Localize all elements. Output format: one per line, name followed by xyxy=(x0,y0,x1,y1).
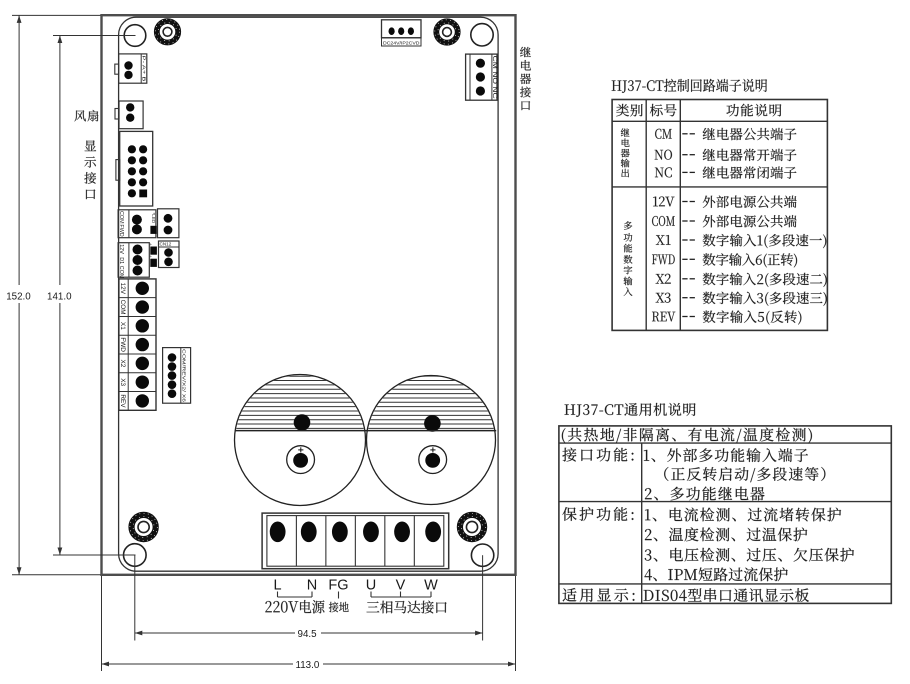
svg-text:P- A+ B: P- A+ B xyxy=(142,56,147,82)
svg-text:FWD: FWD xyxy=(118,224,124,236)
svg-text:W: W xyxy=(424,578,438,594)
svg-text:94.5: 94.5 xyxy=(298,629,318,640)
svg-text:12V: 12V xyxy=(119,283,126,295)
svg-text:FG: FG xyxy=(328,578,348,594)
svg-text:REV: REV xyxy=(119,394,126,408)
svg-text:CM NO NC: CM NO NC xyxy=(491,56,498,100)
svg-text:DC24V/IP2CVD: DC24V/IP2CVD xyxy=(383,41,420,46)
svg-text:113.0: 113.0 xyxy=(296,660,320,671)
svg-text:U: U xyxy=(366,578,376,594)
svg-text:V: V xyxy=(396,578,406,594)
svg-text:L: L xyxy=(273,578,281,594)
svg-text:X1: X1 xyxy=(119,322,126,330)
svg-text:COM/REV/X2/ X6: COM/REV/X2/ X6 xyxy=(182,349,187,403)
svg-text:12V: 12V xyxy=(118,244,124,254)
svg-text:X3: X3 xyxy=(119,378,126,386)
svg-text:N: N xyxy=(307,578,317,594)
svg-text:+: + xyxy=(150,254,153,259)
svg-text:D1: D1 xyxy=(118,257,124,264)
svg-text:152.0: 152.0 xyxy=(6,291,31,302)
svg-text:141.0: 141.0 xyxy=(47,291,72,302)
svg-text:COM: COM xyxy=(119,300,126,315)
svg-text:*LED: *LED xyxy=(151,213,156,224)
svg-text:COM: COM xyxy=(118,211,124,224)
svg-text:CN12: CN12 xyxy=(160,242,172,247)
svg-text:X2: X2 xyxy=(119,359,126,367)
svg-text:+: + xyxy=(150,242,153,247)
svg-text:COM: COM xyxy=(118,266,124,279)
svg-text:FWD: FWD xyxy=(119,337,126,352)
